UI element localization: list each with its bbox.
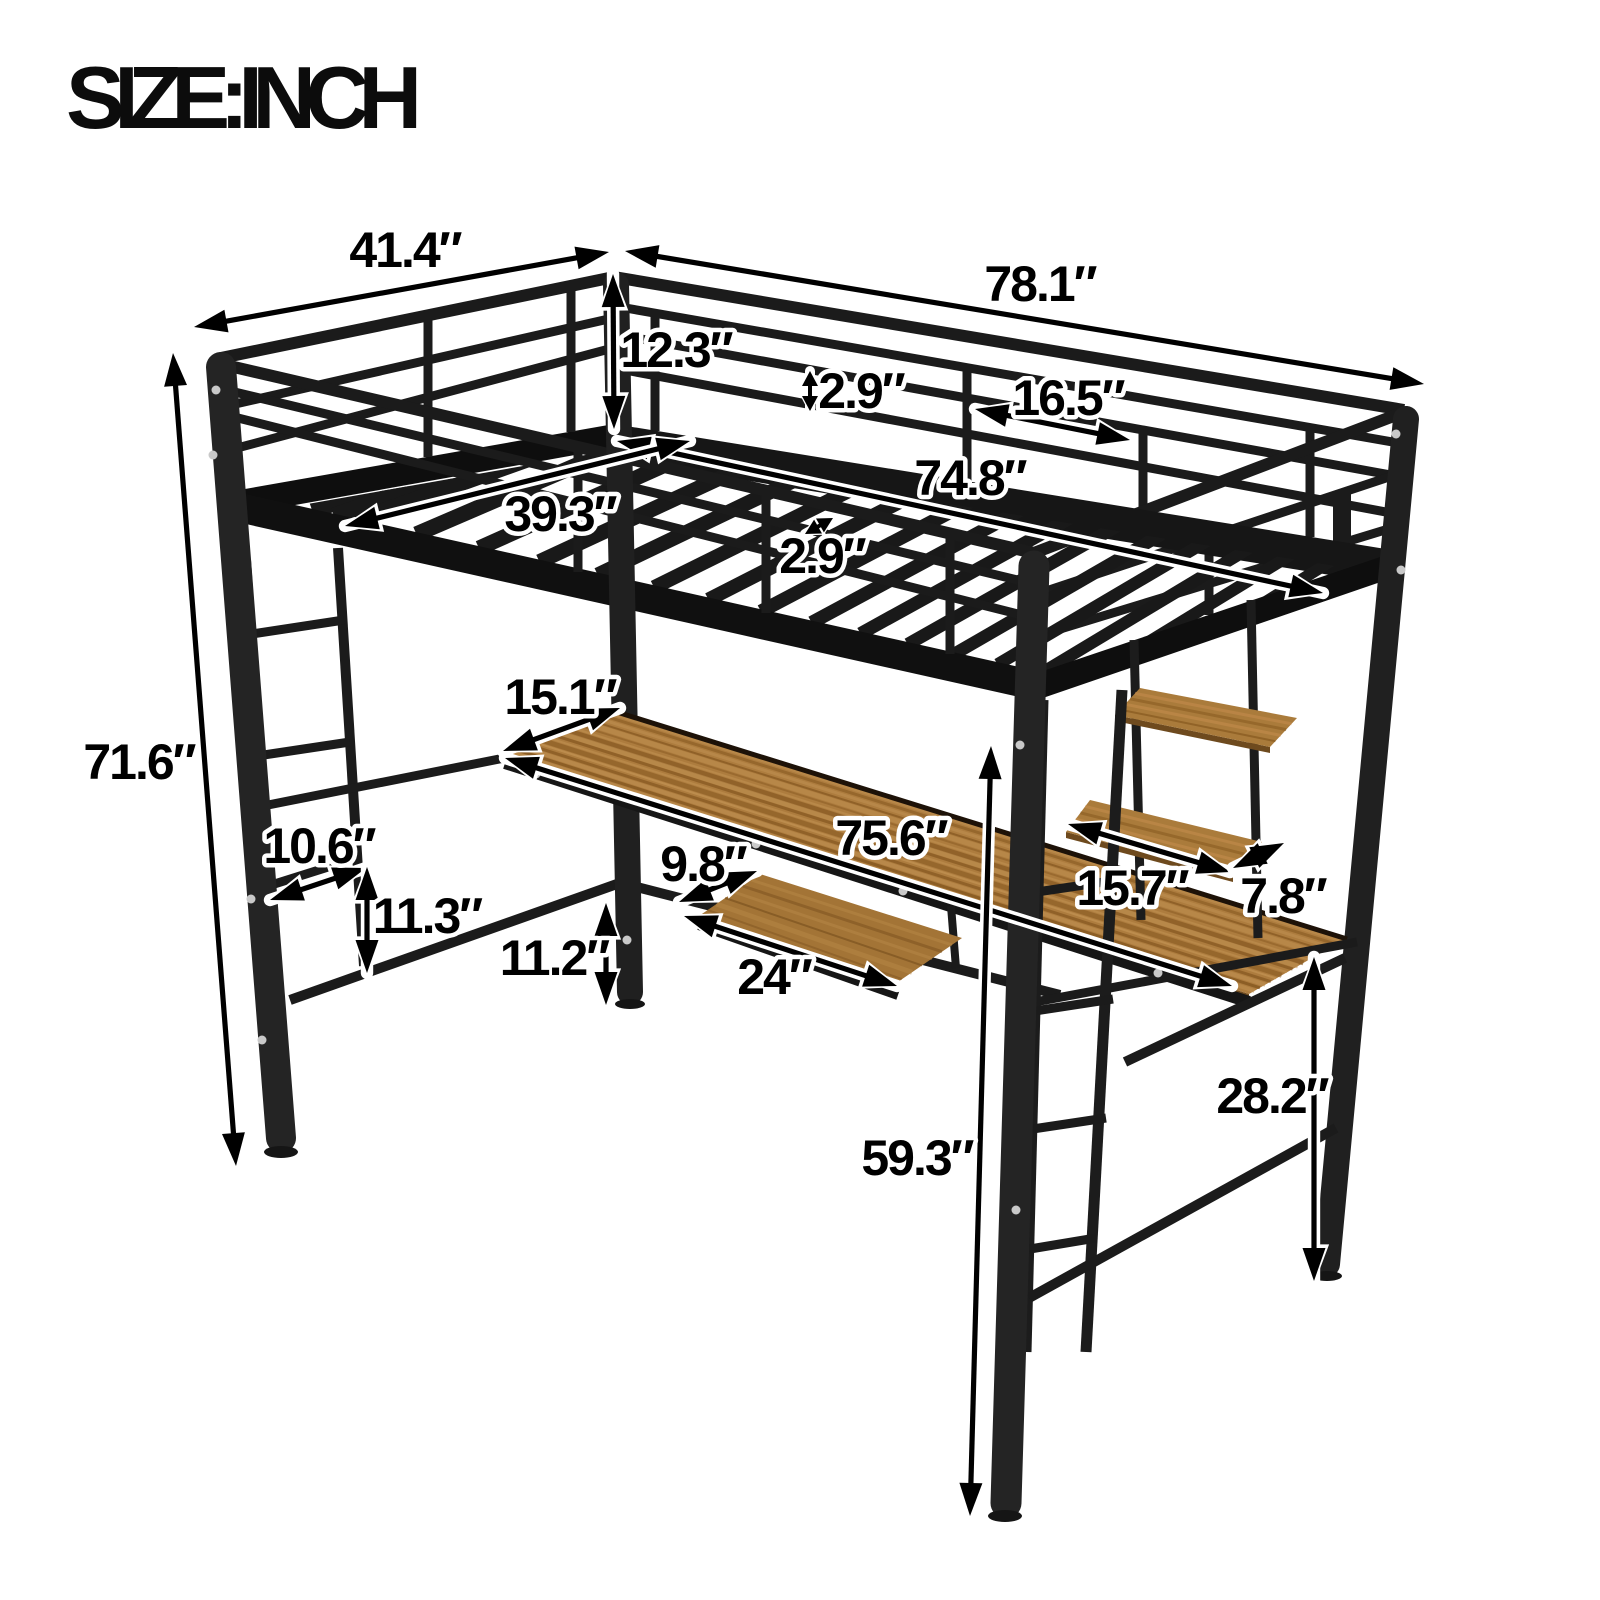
svg-text:78.1″: 78.1″ [984,256,1097,312]
svg-text:7.8″: 7.8″ [1240,868,1328,924]
svg-text:11.3″: 11.3″ [373,888,484,944]
svg-text:15.7″: 15.7″ [1076,860,1189,916]
svg-text:75.6″: 75.6″ [835,810,948,866]
svg-text:12.3″: 12.3″ [620,322,733,378]
svg-text:11.2″: 11.2″ [500,930,611,986]
svg-text:39.3″: 39.3″ [504,486,617,542]
svg-text:59.3″: 59.3″ [861,1130,974,1186]
svg-text:2.9″: 2.9″ [779,528,867,584]
svg-text:16.5″: 16.5″ [1012,370,1125,426]
svg-text:SIZE:INCH: SIZE:INCH [66,48,416,147]
svg-text:9.8″: 9.8″ [660,836,748,892]
svg-text:2.9″: 2.9″ [818,363,906,419]
svg-text:24″: 24″ [737,949,813,1005]
svg-text:74.8″: 74.8″ [914,450,1027,506]
svg-text:10.6″: 10.6″ [263,818,376,874]
svg-text:41.4″: 41.4″ [349,222,462,278]
svg-text:71.6″: 71.6″ [83,734,196,790]
svg-text:15.1″: 15.1″ [504,669,617,725]
svg-text:28.2″: 28.2″ [1216,1068,1329,1124]
